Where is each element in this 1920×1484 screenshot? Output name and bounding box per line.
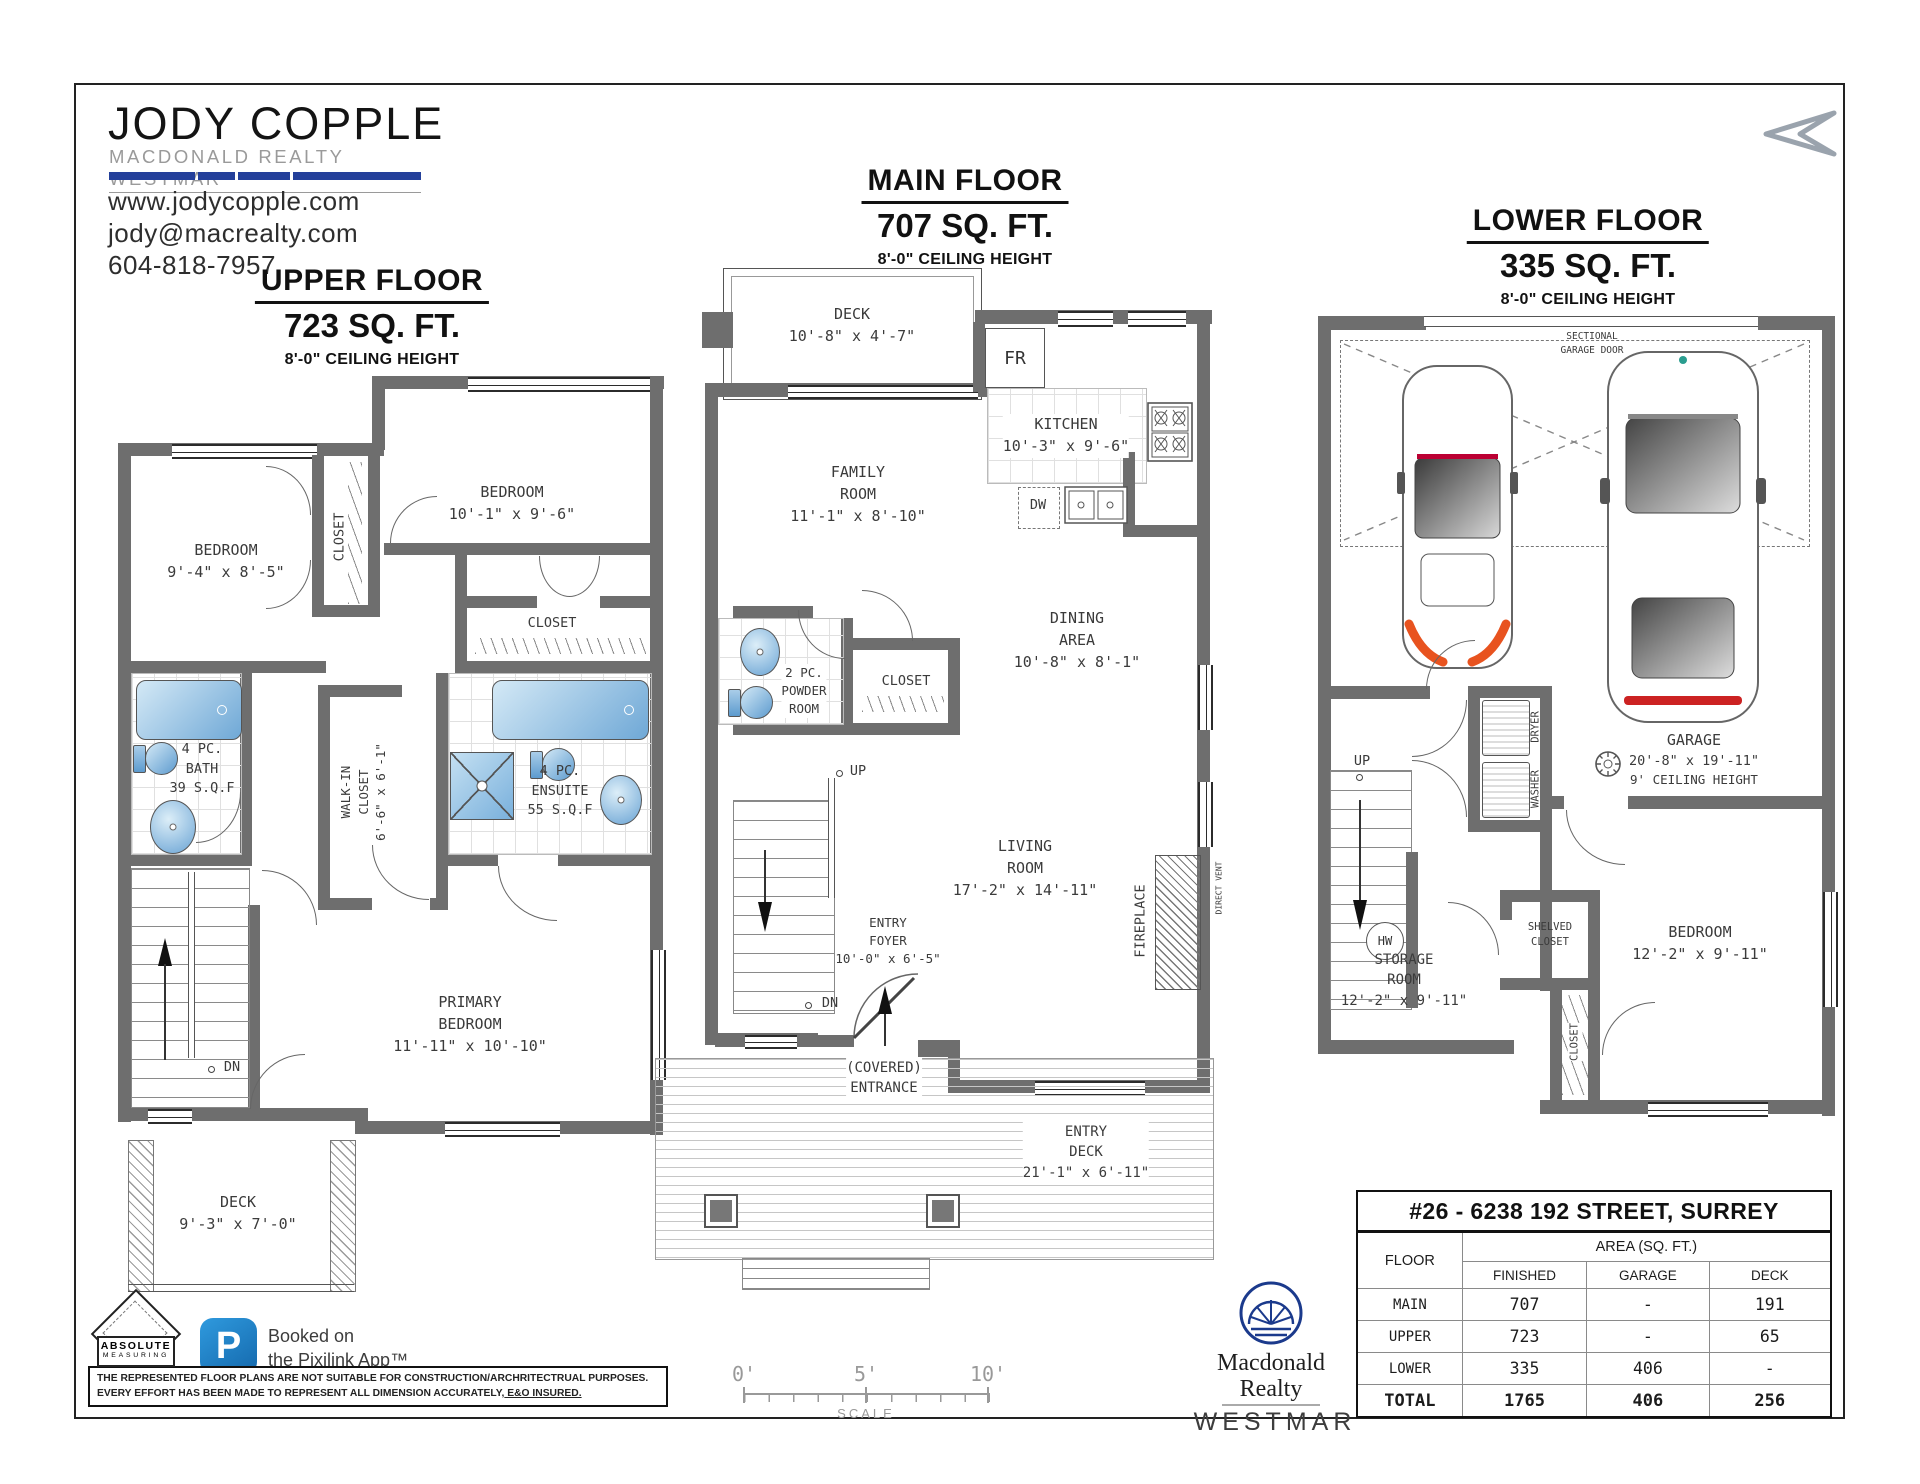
floor-title: LOWER FLOOR xyxy=(1467,204,1709,244)
absolute-measuring-banner: ABSOLUTE MEASURING xyxy=(97,1336,175,1367)
wall xyxy=(973,322,985,392)
wall xyxy=(1552,796,1564,809)
stair-arrow-stem xyxy=(164,964,166,1060)
wall xyxy=(312,605,380,617)
floor-name: TOTAL xyxy=(1357,1385,1462,1418)
stair-arrow-icon xyxy=(758,902,772,932)
wall xyxy=(318,685,330,910)
room-label-storage-room: STORAGE ROOM 12'-2" x 9'-11" xyxy=(1341,950,1467,1011)
wall xyxy=(455,661,662,673)
room-dims: 12'-2" x 9'-11" xyxy=(1632,944,1767,966)
room-name: ROOM xyxy=(790,484,925,506)
room-name: CLOSET xyxy=(354,743,372,841)
fireplace-hatch xyxy=(1155,855,1201,990)
room-label-entry-foyer: ENTRY FOYER 10'-0" x 6'-5" xyxy=(835,914,940,968)
wall xyxy=(1123,525,1210,537)
table-row: MAIN 707 - 191 xyxy=(1357,1289,1831,1321)
disclaimer-line: THE REPRESENTED FLOOR PLANS ARE NOT SUIT… xyxy=(97,1371,659,1386)
room-name: BATH xyxy=(169,760,234,780)
fridge-label: FR xyxy=(1004,348,1026,369)
toilet-bowl xyxy=(740,686,773,719)
listing-address: #26 - 6238 192 STREET, SURREY xyxy=(1356,1190,1832,1232)
room-label-deck: DECK 9'-3" x 7'-0" xyxy=(179,1192,296,1236)
garage-area: 406 xyxy=(1587,1353,1709,1385)
stair-arrow-icon xyxy=(1353,900,1367,930)
room-name: ROOM xyxy=(953,858,1098,880)
window-icon xyxy=(1648,1102,1768,1117)
up-label: UP xyxy=(1354,752,1370,772)
finished-area: 1765 xyxy=(1462,1385,1586,1418)
garage-door-icon xyxy=(1424,316,1760,327)
disclaimer-eo-insured: E&O INSURED. xyxy=(504,1388,581,1399)
room-dims: 9'-3" x 7'-0" xyxy=(179,1214,296,1236)
room-name: BEDROOM xyxy=(1632,922,1767,944)
room-label-closet: CLOSET xyxy=(1568,1023,1583,1061)
bar-segment xyxy=(109,172,195,180)
room-name: FIREPLACE xyxy=(1132,884,1151,957)
table-row: FLOOR AREA (SQ. FT.) xyxy=(1357,1232,1831,1262)
stair-rail xyxy=(828,778,835,898)
appliance-name: WASHER xyxy=(1529,770,1544,808)
realty-divider xyxy=(1222,1404,1320,1406)
stair-direction-label: DN xyxy=(224,1058,240,1078)
washer-icon xyxy=(1482,762,1530,818)
room-name: ENSUITE xyxy=(527,782,592,802)
room-name: BEDROOM xyxy=(393,1014,547,1036)
room-dims: 10'-8" x 4'-7" xyxy=(789,326,915,348)
wall xyxy=(436,673,448,910)
closet-rod-icon xyxy=(862,696,944,712)
room-name: SHELVED xyxy=(1528,920,1572,935)
room-name: CLOSET xyxy=(1528,935,1572,950)
stairs-up xyxy=(733,800,835,1014)
toilet-icon xyxy=(728,686,772,718)
window-icon xyxy=(148,1109,192,1124)
area-header: AREA (SQ. FT.) xyxy=(1462,1232,1831,1262)
room-label-dining-area: DINING AREA 10'-8" x 8'-1" xyxy=(1014,608,1140,673)
bathtub-icon xyxy=(136,680,242,740)
wall xyxy=(1468,686,1480,832)
wall xyxy=(1588,988,1600,1100)
column-header: GARAGE xyxy=(1587,1262,1709,1289)
room-name: 2 PC. xyxy=(781,664,826,682)
bar-segment xyxy=(293,172,421,180)
scale-bar-end-tick xyxy=(743,1387,745,1403)
wall xyxy=(384,543,662,555)
garage-area: - xyxy=(1587,1289,1709,1321)
floor-column-header: FLOOR xyxy=(1357,1232,1462,1289)
floor-ceiling: 8'-0" CEILING HEIGHT xyxy=(255,351,489,369)
room-label-family-room: FAMILY ROOM 11'-1" x 8'-10" xyxy=(790,462,925,527)
realtor-website: www.jodycopple.com xyxy=(108,186,360,217)
vent-name: DIRECT VENT xyxy=(1213,862,1224,915)
room-name: CLOSET xyxy=(331,513,350,562)
scale-bar-ticks xyxy=(744,1393,990,1402)
room-name: LIVING xyxy=(953,836,1098,858)
bar-segment xyxy=(238,172,290,180)
room-name: BEDROOM xyxy=(449,482,575,504)
room-name: WALK-IN xyxy=(337,743,355,841)
room-name: ROOM xyxy=(1341,970,1467,990)
floor-ceiling: 8'-0" CEILING HEIGHT xyxy=(862,251,1069,269)
direct-vent-label: DIRECT VENT xyxy=(1213,862,1224,915)
realtor-phone: 604-818-7957 xyxy=(108,250,276,281)
stair-marker-dot xyxy=(208,1066,215,1073)
room-label-closet: CLOSET xyxy=(882,672,931,692)
room-dims: 9'-4" x 8'-5" xyxy=(167,562,284,584)
wall xyxy=(318,898,372,910)
wall xyxy=(455,596,537,608)
pixilink-letter: P xyxy=(216,1325,241,1368)
finished-area: 723 xyxy=(1462,1321,1586,1353)
room-name: ENTRY xyxy=(835,914,940,932)
stove-icon xyxy=(1147,402,1193,462)
window-icon xyxy=(1823,892,1838,1007)
garage-area: - xyxy=(1587,1321,1709,1353)
floor-plan-sheet: JODY COPPLE MACDONALD REALTY WESTMAR www… xyxy=(0,0,1920,1484)
room-dims: 10'-1" x 9'-6" xyxy=(449,504,575,526)
room-label-closet: CLOSET xyxy=(331,513,350,562)
window-icon xyxy=(1128,311,1186,327)
floor-title: MAIN FLOOR xyxy=(862,164,1069,204)
window-icon xyxy=(172,444,317,459)
stair-marker-dot xyxy=(836,770,843,777)
wall xyxy=(1500,890,1600,902)
closet-rod-icon xyxy=(348,462,362,604)
stair-marker-dot xyxy=(805,1002,812,1009)
room-label-bedroom: BEDROOM 12'-2" x 9'-11" xyxy=(1632,922,1767,966)
sliding-door-icon xyxy=(788,385,978,399)
room-label-closet: CLOSET xyxy=(528,614,577,634)
realty-name-line: Realty xyxy=(1217,1376,1325,1402)
floor-title: UPPER FLOOR xyxy=(255,264,489,304)
room-name: DECK xyxy=(789,304,915,326)
room-name: DECK xyxy=(179,1192,296,1214)
scale-caption: SCALE xyxy=(837,1406,895,1421)
room-name: AREA xyxy=(1014,630,1140,652)
wall xyxy=(1500,890,1512,920)
wall xyxy=(118,443,131,1122)
north-arrow-icon xyxy=(1756,106,1838,160)
room-dims: 10'-8" x 8'-1" xyxy=(1014,652,1140,674)
car-icon xyxy=(1395,362,1520,674)
wall xyxy=(1628,796,1835,809)
bathtub-icon xyxy=(492,680,649,740)
garage-opener-icon xyxy=(1594,750,1622,778)
stair-direction-label: UP xyxy=(1354,752,1370,772)
label-line: (COVERED) xyxy=(846,1058,922,1078)
table-row-total: TOTAL 1765 406 256 xyxy=(1357,1385,1831,1418)
dryer-icon xyxy=(1482,700,1530,756)
floor-name: LOWER xyxy=(1357,1353,1462,1385)
area-summary-table: FLOOR AREA (SQ. FT.) FINISHED GARAGE DEC… xyxy=(1356,1231,1832,1418)
window-icon xyxy=(745,1035,797,1049)
floor-area: 707 SQ. FT. xyxy=(862,207,1069,245)
room-label-kitchen: KITCHEN 10'-3" x 9'-6" xyxy=(1003,414,1129,458)
room-label-bedroom: BEDROOM 10'-1" x 9'-6" xyxy=(449,482,575,526)
room-name: FAMILY xyxy=(790,462,925,484)
appliance-name: DRYER xyxy=(1529,711,1544,743)
wall xyxy=(368,455,380,617)
realtor-email: jody@macrealty.com xyxy=(108,218,358,249)
room-dims: 10'-3" x 9'-6" xyxy=(1003,436,1129,458)
fireplace-label: FIREPLACE xyxy=(1132,884,1151,957)
wall xyxy=(372,388,385,450)
window-icon xyxy=(445,1122,560,1137)
column-header: DECK xyxy=(1709,1262,1831,1289)
room-label-walkin-closet: WALK-IN CLOSET 6'-6" x 6'-1" xyxy=(337,743,390,841)
room-name: 4 PC. xyxy=(527,762,592,782)
room-label-primary-bedroom: PRIMARY BEDROOM 11'-11" x 10'-10" xyxy=(393,992,547,1057)
window-icon xyxy=(1198,665,1213,730)
wall xyxy=(600,596,662,608)
room-name: GARAGE xyxy=(1629,730,1759,752)
room-area: 55 S.Q.F xyxy=(527,801,592,821)
table-row: UPPER 723 - 65 xyxy=(1357,1321,1831,1353)
deck-post-wall xyxy=(330,1140,356,1292)
logo-text: MEASURING xyxy=(99,1352,173,1359)
garage-area: 406 xyxy=(1587,1385,1709,1418)
disclaimer-line: EVERY EFFORT HAS BEEN MADE TO REPRESENT … xyxy=(97,1386,659,1401)
disclaimer: THE REPRESENTED FLOOR PLANS ARE NOT SUIT… xyxy=(88,1366,668,1407)
room-name: PRIMARY xyxy=(393,992,547,1014)
room-dims: 11'-1" x 8'-10" xyxy=(790,506,925,528)
sink-icon xyxy=(740,628,780,676)
brand-accent-bar xyxy=(109,172,421,180)
macdonald-realty-logo-icon xyxy=(1238,1280,1304,1346)
entry-steps xyxy=(742,1258,930,1290)
room-name: DECK xyxy=(1023,1142,1149,1162)
stair-direction-label: DN xyxy=(822,994,838,1014)
scale-bar-end-tick xyxy=(987,1387,989,1403)
wall xyxy=(1588,890,1600,990)
up-label: UP xyxy=(850,762,866,782)
window-icon xyxy=(468,377,650,392)
room-name: STORAGE xyxy=(1341,950,1467,970)
disclaimer-text: EVERY EFFORT HAS BEEN MADE TO REPRESENT … xyxy=(97,1388,504,1399)
room-label-powder-room: 2 PC. POWDER ROOM xyxy=(781,664,826,718)
room-name: ROOM xyxy=(781,700,826,718)
car-icon xyxy=(1598,348,1768,726)
deck-area: - xyxy=(1709,1353,1831,1385)
realty-brand: WESTMAR xyxy=(1194,1408,1357,1437)
deck-post-wall xyxy=(128,1140,154,1292)
bar-segment xyxy=(198,172,235,180)
stair-rail xyxy=(188,872,195,1058)
lower-floor-title: LOWER FLOOR 335 SQ. FT. 8'-0" CEILING HE… xyxy=(1467,204,1709,309)
wall xyxy=(702,312,733,348)
stair-marker-dot xyxy=(1356,774,1363,781)
realtor-name: JODY COPPLE xyxy=(108,98,444,150)
wall xyxy=(1318,686,1430,699)
realty-name: Macdonald Realty xyxy=(1217,1350,1325,1403)
room-dims: 21'-1" x 6'-11" xyxy=(1023,1163,1149,1183)
entry-arrow-icon xyxy=(878,986,892,1014)
realty-name-line: Macdonald xyxy=(1217,1350,1325,1376)
shower-icon xyxy=(450,752,514,820)
finished-area: 707 xyxy=(1462,1289,1586,1321)
room-dims: 20'-8" x 19'-11" xyxy=(1629,752,1759,772)
room-name: ENTRY xyxy=(1023,1122,1149,1142)
stair-arrow-icon xyxy=(158,938,172,966)
window-icon xyxy=(1198,782,1213,847)
wall xyxy=(318,685,402,697)
pixilink-text: Booked on xyxy=(268,1326,354,1347)
room-name: POWDER xyxy=(781,682,826,700)
hw-label: HW xyxy=(1378,934,1392,948)
room-name: BEDROOM xyxy=(167,540,284,562)
floor-name: MAIN xyxy=(1357,1289,1462,1321)
wall xyxy=(455,555,467,673)
deck-area: 65 xyxy=(1709,1321,1831,1353)
scale-tick-label: 0' xyxy=(732,1362,756,1386)
room-label-ensuite: 4 PC. ENSUITE 55 S.Q.F xyxy=(527,762,592,821)
dishwasher-label: DW xyxy=(1030,496,1046,516)
main-floor-title: MAIN FLOOR 707 SQ. FT. 8'-0" CEILING HEI… xyxy=(862,164,1069,269)
deck-post-icon xyxy=(704,1194,738,1228)
table-row: LOWER 335 406 - xyxy=(1357,1353,1831,1385)
room-dims: 17'-2" x 14'-11" xyxy=(953,880,1098,902)
wall xyxy=(312,455,324,617)
floor-area: 335 SQ. FT. xyxy=(1467,247,1709,285)
room-area: 39 S.Q.F xyxy=(169,779,234,799)
wall xyxy=(918,1040,960,1057)
dn-label: DN xyxy=(822,994,838,1014)
deck-area: 256 xyxy=(1709,1385,1831,1418)
deck-edge xyxy=(128,1284,354,1292)
logo-text: ABSOLUTE xyxy=(99,1340,173,1352)
room-label-shelved-closet: SHELVED CLOSET xyxy=(1528,920,1572,950)
wall xyxy=(1550,988,1562,1100)
upper-floor-title: UPPER FLOOR 723 SQ. FT. 8'-0" CEILING HE… xyxy=(255,264,489,369)
wall xyxy=(705,383,718,1045)
fridge-icon: FR xyxy=(985,328,1045,388)
appliance-name: DW xyxy=(1030,496,1046,516)
floor-name: UPPER xyxy=(1357,1321,1462,1353)
room-label-bedroom: BEDROOM 9'-4" x 8'-5" xyxy=(167,540,284,584)
double-sink-icon xyxy=(1064,486,1128,524)
window-icon xyxy=(1058,311,1113,327)
room-name: CLOSET xyxy=(882,672,931,692)
room-label-bath: 4 PC. BATH 39 S.Q.F xyxy=(169,740,234,799)
finished-area: 335 xyxy=(1462,1353,1586,1385)
wall xyxy=(948,638,960,735)
stair-arrow-stem xyxy=(764,850,766,908)
sink-icon xyxy=(150,800,196,854)
room-name: CLOSET xyxy=(528,614,577,634)
room-label-living-room: LIVING ROOM 17'-2" x 14'-11" xyxy=(953,836,1098,901)
deck-post-icon xyxy=(926,1194,960,1228)
scale-bar-mid-tick xyxy=(865,1387,867,1403)
floor-ceiling: 8'-0" CEILING HEIGHT xyxy=(1467,291,1709,309)
scale-tick-label: 10' xyxy=(970,1362,1006,1386)
room-dims: 6'-6" x 6'-1" xyxy=(372,743,390,841)
floor-area: 723 SQ. FT. xyxy=(255,307,489,345)
room-name: FOYER xyxy=(835,932,940,950)
room-name: 4 PC. xyxy=(169,740,234,760)
scale-tick-label: 5' xyxy=(854,1362,878,1386)
deck-area: 191 xyxy=(1709,1289,1831,1321)
wall xyxy=(130,661,326,673)
room-dims: 11'-11" x 10'-10" xyxy=(393,1036,547,1058)
sink-icon xyxy=(600,775,642,825)
room-ceiling: 9' CEILING HEIGHT xyxy=(1629,771,1759,789)
stair-direction-label: UP xyxy=(850,762,866,782)
wall xyxy=(1318,316,1426,330)
washer-label: WASHER xyxy=(1529,770,1544,808)
room-name: CLOSET xyxy=(1568,1023,1583,1061)
room-label-entry-deck: ENTRY DECK 21'-1" x 6'-11" xyxy=(1023,1122,1149,1183)
covered-entrance-label: (COVERED) ENTRANCE xyxy=(846,1058,922,1099)
label-line: ENTRANCE xyxy=(846,1078,922,1098)
room-name: KITCHEN xyxy=(1003,414,1129,436)
room-name: DINING xyxy=(1014,608,1140,630)
room-label-deck: DECK 10'-8" x 4'-7" xyxy=(789,304,915,348)
stair-arrow-stem xyxy=(1359,800,1361,906)
column-header: FINISHED xyxy=(1462,1262,1586,1289)
dryer-label: DRYER xyxy=(1529,711,1544,743)
wall xyxy=(1318,1040,1514,1054)
closet-rod-icon xyxy=(475,638,647,654)
dn-label: DN xyxy=(224,1058,240,1078)
room-dims: 10'-0" x 6'-5" xyxy=(835,950,940,968)
room-label-garage: GARAGE 20'-8" x 19'-11" 9' CEILING HEIGH… xyxy=(1629,730,1759,789)
wall xyxy=(818,1035,854,1047)
room-dims: 12'-2" x 9'-11" xyxy=(1341,991,1467,1011)
